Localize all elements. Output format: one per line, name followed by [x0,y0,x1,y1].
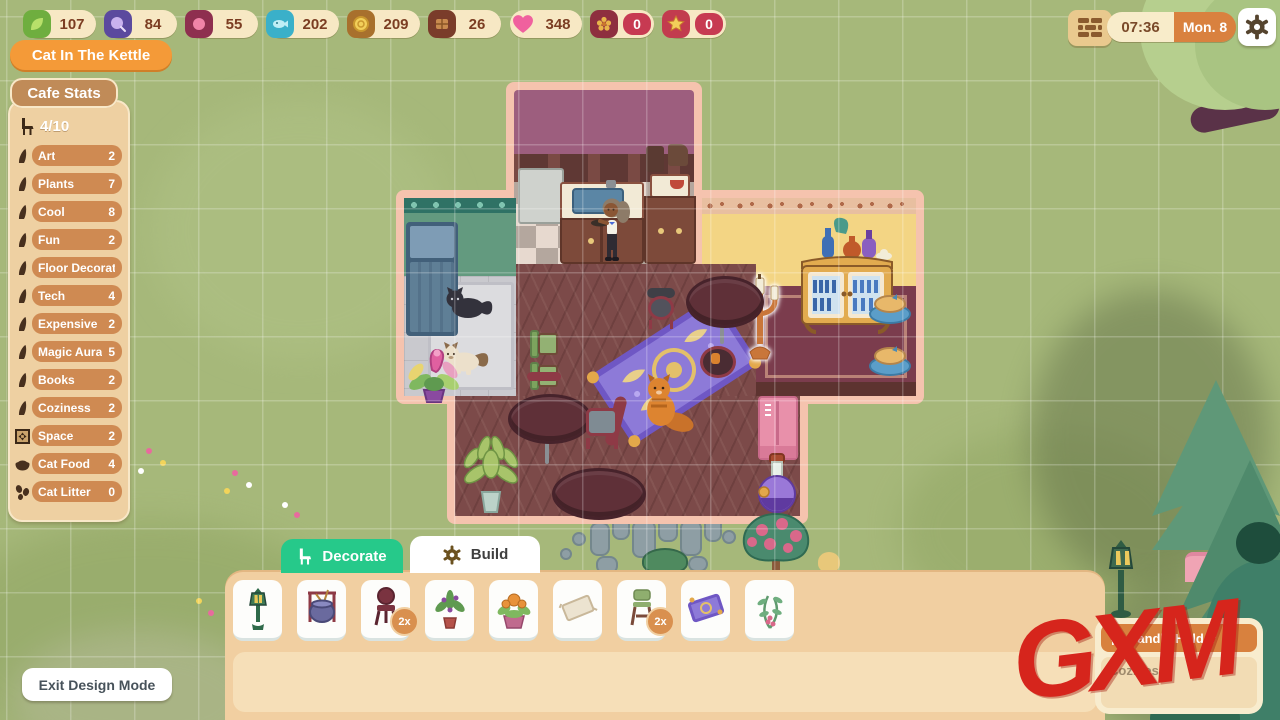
chair-icon [19,117,36,136]
parlor-floor-strip [756,382,916,396]
resource-pill: 55 [186,10,258,38]
tab-decorate[interactable]: Decorate [281,539,403,573]
cauldron-icon [302,586,342,632]
black-cat[interactable] [442,282,498,322]
resource-value: 202 [294,16,339,33]
resource-value: 107 [51,16,96,33]
stat-label: Floor Decoration [38,261,115,275]
resource-value: 84 [132,16,177,33]
stat-label: Books [38,373,75,387]
stat-value: 8 [108,205,115,219]
stat-brush-icon [13,399,32,417]
stat-brush-icon [13,287,32,305]
resource-pill: 202 [267,10,339,38]
item-card-potted-plant[interactable] [425,580,474,641]
coin-icon [347,10,375,38]
stat-pill: Plants7 [32,173,122,194]
stat-pill: Fun2 [32,229,122,250]
stat-brush-icon [13,203,32,221]
item-palette-panel: 2x2x [225,572,1105,720]
tooltip-stat: Coziness: [1109,663,1170,678]
tab-build[interactable]: Build [410,536,540,573]
stat-pill: Cool8 [32,201,122,222]
coffee-machine[interactable] [644,144,690,196]
potted-plant-large[interactable] [460,424,522,516]
item-tooltip: Candle Holder Coziness: [1095,618,1263,714]
stat-row: Cool8 [13,201,125,222]
orange-cat[interactable] [640,372,698,434]
cafe-stats-panel: 4/10Art2Plants7Cool8Fun2Floor Decoration… [8,100,130,522]
furniture-crate-icon [428,10,456,38]
seats-stat: 4/10 [13,114,125,138]
item-description-area [233,652,1097,712]
resource-bar: 10784552022092634800 [24,10,726,38]
brick-icon [1077,17,1103,39]
resource-pill: 107 [24,10,96,38]
stat-pill: Magic Aura5 [32,341,122,362]
tab-build-label: Build [471,546,509,563]
chair-icon [1109,631,1122,646]
heart-icon [509,10,537,38]
stat-label: Magic Aura [38,345,102,359]
cafe-stats-title: Cafe Stats [27,85,100,102]
stat-pill: Cat Litter0 [32,481,122,502]
item-card-cauldron[interactable] [297,580,346,641]
stat-label: Plants [38,177,74,191]
stat-row: Cat Litter0 [13,481,125,502]
stat-value: 0 [108,485,115,499]
cat-bowl[interactable] [868,290,912,324]
green-chair[interactable] [530,330,560,358]
bush [1236,522,1280,564]
stat-brush-icon [13,371,32,389]
item-card-red-chair[interactable]: 2x [361,580,410,641]
stat-value: 2 [108,401,115,415]
resource-pill: 209 [348,10,420,38]
exit-design-mode-button[interactable]: Exit Design Mode [22,668,172,701]
cream-rug-icon [558,586,598,632]
time-label: 07:36 [1107,12,1174,42]
stat-brush-icon [13,147,32,165]
cat-litter-icon [13,483,32,501]
resource-value: 55 [213,16,258,33]
stat-label: Cat Litter [38,485,91,499]
item-card-purple-rug[interactable] [681,580,730,641]
item-card-flower-basket[interactable] [489,580,538,641]
gear-icon [1244,14,1270,40]
item-count-badge: 2x [646,607,675,636]
stat-label: Space [38,429,73,443]
game-screen: 10784552022092634800 Cat In The Kettle 0… [0,0,1280,720]
stat-value: 2 [108,429,115,443]
stat-label: Fun [38,233,60,247]
date-label: Mon. 8 [1174,12,1236,42]
stat-row: Magic Aura5 [13,341,125,362]
side-room-wallpaper [404,198,516,213]
red-chair[interactable] [584,396,634,450]
tab-decorate-label: Decorate [322,548,386,565]
item-card-cream-rug[interactable] [553,580,602,641]
stat-row: Tech4 [13,285,125,306]
stat-brush-icon [13,315,32,333]
wallpaper-tool-button[interactable] [1068,10,1112,46]
stat-label: Cat Food [38,457,90,471]
stat-row: Art2 [13,145,125,166]
resource-value: 26 [456,16,501,33]
resource-pill: 348 [510,10,582,38]
item-count-badge: 2x [390,607,419,636]
potted-plant-icon [430,586,470,632]
resource-value: 0 [623,13,651,35]
stat-row: Cat Food4 [13,453,125,474]
fish-icon [266,10,294,38]
resource-value: 0 [695,13,723,35]
stat-pill: Coziness2 [32,397,122,418]
stat-label: Expensive [38,317,97,331]
resource-pill: 84 [105,10,177,38]
coffee-counter-body [644,196,696,264]
resource-value: 348 [537,16,582,33]
stat-brush-icon [13,343,32,361]
cat-food-bowl-icon [13,455,32,473]
stat-pill: Books2 [32,369,122,390]
stat-value: 7 [108,177,115,191]
stat-label: Art [38,149,55,163]
stat-value: 2 [108,317,115,331]
stat-pill: Space2 [32,425,122,446]
resource-value: 209 [375,16,420,33]
passerby-character [818,552,840,572]
item-card-green-chair[interactable]: 2x [617,580,666,641]
turtle-statue[interactable] [642,548,688,574]
berry-icon [185,10,213,38]
round-table[interactable] [686,276,764,328]
stat-pill: Art2 [32,145,122,166]
stat-pill: Floor Decoration [32,257,122,278]
berry-vine-icon [750,586,790,632]
yarn-ball-icon [104,10,132,38]
stat-value: 2 [108,373,115,387]
resource-pill: 0 [663,10,726,38]
tooltip-title: Candle Holder [1128,631,1216,646]
potion-bottle[interactable] [756,452,800,516]
stat-label: Tech [38,289,65,303]
settings-button[interactable] [1238,8,1276,46]
cafe-name-label: Cat In The Kettle [32,47,150,64]
exit-design-mode-label: Exit Design Mode [39,677,156,693]
catnip-leaf-icon [23,10,51,38]
space-icon [13,427,32,445]
stat-value: 4 [108,457,115,471]
chair-icon [297,547,313,566]
clock-display: 07:36 Mon. 8 [1107,12,1236,42]
cafe-stats-header: Cafe Stats [10,78,118,108]
star-badge-icon [662,10,690,38]
stat-value: 4 [108,289,115,303]
lamp-post-icon [238,586,278,632]
black-chair[interactable] [645,288,677,330]
stat-value: 2 [108,233,115,247]
stat-pill: Cat Food4 [32,453,122,474]
barista-character[interactable] [590,196,636,266]
stat-row: Books2 [13,369,125,390]
stat-brush-icon [13,231,32,249]
gear-icon [442,545,462,565]
seats-value: 4/10 [40,118,69,135]
item-palette: 2x2x [233,580,794,641]
stat-row: Expensive2 [13,313,125,334]
item-card-lamp-post[interactable] [233,580,282,641]
cat-bowl[interactable] [868,342,912,376]
red-chair[interactable] [527,372,561,388]
stat-row: Coziness2 [13,397,125,418]
stat-row: Space2 [13,425,125,446]
stat-label: Coziness [38,401,91,415]
pitcher-plant[interactable] [404,342,462,404]
stat-row: Floor Decoration [13,257,125,278]
berry-bush[interactable] [738,510,814,574]
round-table[interactable] [552,468,646,520]
pink-fridge[interactable] [758,396,798,460]
stat-value: 2 [108,149,115,163]
flower-basket-icon [494,586,534,632]
resource-pill: 0 [591,10,654,38]
stat-pill: Expensive2 [32,313,122,334]
paw-flower-badge-icon [590,10,618,38]
stat-pill: Tech4 [32,285,122,306]
item-card-berry-vine[interactable] [745,580,794,641]
stat-brush-icon [13,259,32,277]
cafe-name-button[interactable]: Cat In The Kettle [10,40,172,70]
kitchen-door [518,168,564,224]
stool[interactable] [700,346,736,378]
stat-label: Cool [38,205,65,219]
lamp-post[interactable] [1103,540,1139,620]
resource-pill: 26 [429,10,501,38]
stat-brush-icon [13,175,32,193]
parlor-wallpaper-border [702,198,916,214]
stat-value: 5 [108,345,115,359]
purple-rug-icon [686,586,726,632]
stat-row: Plants7 [13,173,125,194]
stat-row: Fun2 [13,229,125,250]
